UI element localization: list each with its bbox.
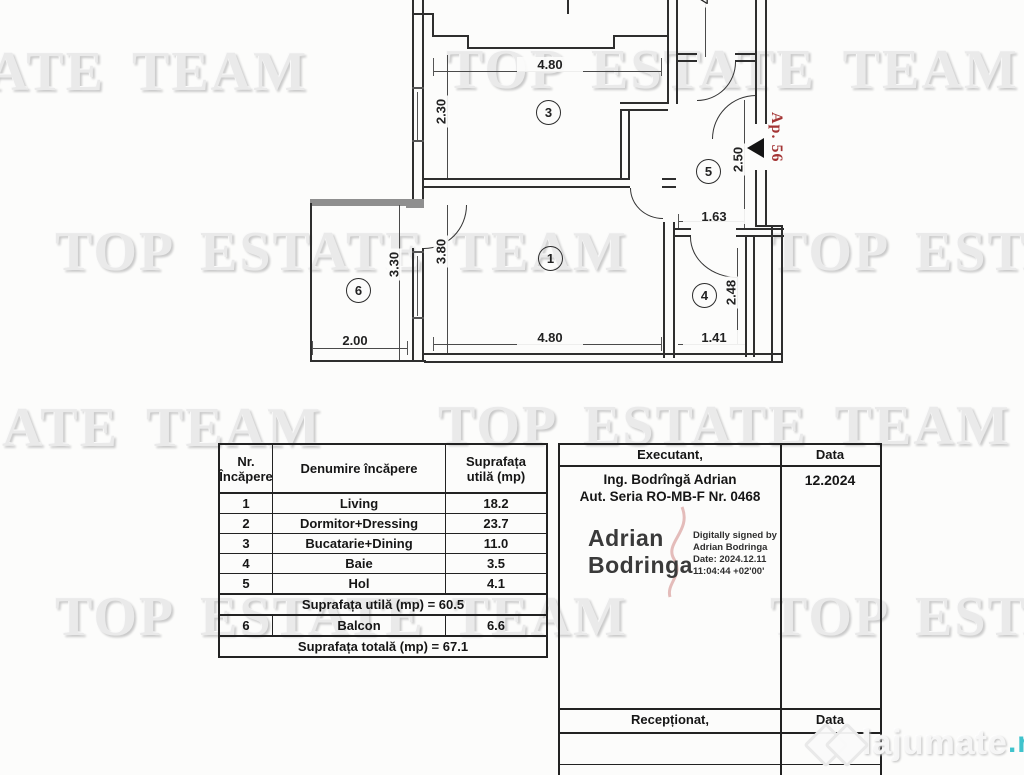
room-name-cell: Hol xyxy=(272,574,445,593)
wall-segment xyxy=(676,60,697,62)
signature-name-line: Adrian xyxy=(588,525,693,552)
table-row: 3 Bucatarie+Dining 11.0 xyxy=(220,533,546,553)
wall-segment xyxy=(663,222,665,358)
wall-segment xyxy=(310,203,312,362)
room-name-cell: Baie xyxy=(272,554,445,573)
balcony-wall xyxy=(406,199,424,208)
room-nr-cell: 3 xyxy=(220,534,272,553)
dimension-tick xyxy=(433,58,434,76)
signature-detail-line: Adrian Bodringa xyxy=(693,542,777,554)
wall-segment xyxy=(567,0,569,14)
wall-segment xyxy=(628,109,630,180)
table-row-balcony: 6 Balcon 6.6 xyxy=(220,614,546,635)
room-name-cell: Bucatarie+Dining xyxy=(272,534,445,553)
engineer-name: Ing. Bodrîngă Adrian xyxy=(560,472,780,487)
wall-segment xyxy=(424,353,783,355)
room-area-cell: 6.6 xyxy=(445,616,546,635)
wall-segment xyxy=(735,60,756,62)
header-nr: Nr. Încăpere xyxy=(220,445,272,492)
window-tick xyxy=(412,251,424,253)
wall-segment xyxy=(673,222,675,358)
dimension-tick xyxy=(661,337,662,351)
room-nr-cell: 6 xyxy=(220,616,272,635)
wall-segment xyxy=(781,225,783,362)
total-text: Suprafața totală (mp) = 67.1 xyxy=(298,639,468,654)
header-text: utilă (mp) xyxy=(467,469,526,484)
door-arc-living xyxy=(630,188,663,219)
header-name: Denumire încăpere xyxy=(272,445,445,492)
wall-segment xyxy=(755,225,783,227)
wall-segment xyxy=(422,248,424,362)
table-row: 4 Baie 3.5 xyxy=(220,553,546,573)
wall-segment xyxy=(620,109,622,180)
dim-label-hall-height: 2.50 xyxy=(731,130,746,190)
wall-segment xyxy=(662,186,676,188)
wall-segment xyxy=(613,35,615,49)
dim-label-bath-width: 1.41 xyxy=(683,330,745,345)
room-area-cell: 4.1 xyxy=(445,574,546,593)
wall-segment xyxy=(422,0,424,203)
wall-segment xyxy=(735,53,756,55)
header-text: Nr. xyxy=(237,454,254,469)
wall-segment xyxy=(676,0,678,104)
dim-label-kitchen-height: 2.30 xyxy=(434,82,449,142)
table-row: 5 Hol 4.1 xyxy=(220,573,546,593)
dim-text: 3.30 xyxy=(387,249,402,280)
wall-segment xyxy=(432,35,469,37)
digital-signature-name: Adrian Bodringa xyxy=(588,525,693,579)
wall-segment xyxy=(424,178,630,180)
wall-segment xyxy=(424,361,783,363)
door-arc-hall xyxy=(697,62,736,101)
dimension-tick xyxy=(407,341,408,355)
dim-label-balcony-width: 2.00 xyxy=(324,333,386,348)
wall-segment xyxy=(755,170,757,227)
wall-segment xyxy=(667,0,669,104)
room-nr-cell: 4 xyxy=(220,554,272,573)
executant-label: Executant, xyxy=(560,447,780,462)
room-nr-cell: 2 xyxy=(220,514,272,533)
signature-name-line: Bodringa xyxy=(588,552,693,579)
signature-detail-line: Digitally signed by xyxy=(693,530,777,542)
wall-segment xyxy=(620,102,668,104)
wall-segment xyxy=(765,0,767,124)
dim-label-balcony-height: 3.30 xyxy=(387,235,402,295)
header-rule xyxy=(560,465,880,467)
wall-segment xyxy=(674,228,691,230)
section-rule xyxy=(560,708,880,710)
date-value: 12.2024 xyxy=(782,472,878,488)
wall-segment xyxy=(310,360,426,362)
apartment-number-label: Ap. 56 xyxy=(767,112,785,188)
wall-segment xyxy=(613,35,669,37)
header-text: Denumire încăpere xyxy=(300,461,417,476)
lajumate-logo-icon xyxy=(806,720,862,766)
subtotal-row: Suprafața utilă (mp) = 60.5 xyxy=(220,593,546,614)
engineer-authorization: Aut. Seria RO-MB-F Nr. 0468 xyxy=(560,489,780,504)
lajumate-logo-text: lajumate xyxy=(862,724,1008,763)
wall-segment xyxy=(412,13,434,15)
dim-text: 2.30 xyxy=(434,96,449,127)
dim-text: 2.50 xyxy=(731,144,746,175)
dimension-tick xyxy=(312,341,313,355)
room-name-cell: Dormitor+Dressing xyxy=(272,514,445,533)
signature-detail-line: Date: 2024.12.11 xyxy=(693,554,777,566)
wall-segment xyxy=(412,248,414,362)
header-text: Suprafața xyxy=(466,454,526,469)
room-area-cell: 3.5 xyxy=(445,554,546,573)
dimension-line xyxy=(312,348,408,349)
wall-segment xyxy=(676,53,697,55)
dim-label-living-height: 3.80 xyxy=(434,222,449,282)
lajumate-watermark: lajumate.ro xyxy=(806,720,1024,766)
dimension-tick xyxy=(433,337,434,351)
window-tick xyxy=(412,87,424,89)
window-mid-line xyxy=(417,256,418,316)
rooms-table: Nr. Încăpere Denumire încăpere Suprafața… xyxy=(218,443,548,658)
room-area-cell: 18.2 xyxy=(445,494,546,513)
window-tick xyxy=(412,317,424,319)
wall-segment xyxy=(736,235,784,237)
lajumate-logo-tld: .ro xyxy=(1008,726,1024,760)
table-row: 2 Dormitor+Dressing 23.7 xyxy=(220,513,546,533)
room-circle-living: 1 xyxy=(538,246,563,271)
table-row: 1 Living 18.2 xyxy=(220,492,546,513)
room-area-cell: 11.0 xyxy=(445,534,546,553)
wall-segment xyxy=(771,225,773,362)
window-mid-line xyxy=(417,92,418,140)
dim-label-bath-height: 2.48 xyxy=(724,263,739,323)
dim-text: 2.48 xyxy=(724,277,739,308)
wall-segment xyxy=(662,178,676,180)
dimension-tick xyxy=(678,214,679,228)
total-row: Suprafața totală (mp) = 67.1 xyxy=(220,635,546,656)
dim-label-cut-top: 4 xyxy=(698,0,713,16)
room-circle-balcony: 6 xyxy=(346,278,371,303)
dimension-tick xyxy=(661,58,662,76)
room-nr-cell: 5 xyxy=(220,574,272,593)
scanned-floor-plan-page: { "watermarks": { "full": "TOP ESTATE TE… xyxy=(0,0,1024,768)
header-area: Suprafața utilă (mp) xyxy=(445,445,546,492)
wall-segment xyxy=(745,237,747,357)
receptionat-label: Recepționat, xyxy=(560,712,780,727)
dim-label-top-width: 4.80 xyxy=(517,57,583,72)
dim-label-hall-width: 1.63 xyxy=(683,209,745,224)
wall-segment xyxy=(467,47,615,49)
wall-segment xyxy=(674,235,691,237)
wall-segment xyxy=(753,237,755,357)
wall-segment xyxy=(432,13,434,37)
dim-text: 3.80 xyxy=(434,236,449,267)
room-name-cell: Balcon xyxy=(272,616,445,635)
dim-label-living-width: 4.80 xyxy=(517,330,583,345)
subtotal-text: Suprafața utilă (mp) = 60.5 xyxy=(302,597,464,612)
room-name-cell: Living xyxy=(272,494,445,513)
signature-detail-line: 11:04:44 +02'00' xyxy=(693,566,777,578)
data-label: Data xyxy=(782,447,878,462)
room-nr-cell: 1 xyxy=(220,494,272,513)
digital-signature-details: Digitally signed by Adrian Bodringa Date… xyxy=(693,530,777,578)
wall-segment xyxy=(424,186,630,188)
wall-segment xyxy=(736,228,784,230)
header-text: Încăpere xyxy=(219,469,272,484)
room-circle-kitchen: 3 xyxy=(536,100,561,125)
dim-text: 4 xyxy=(698,0,713,7)
room-circle-bathroom: 4 xyxy=(692,283,717,308)
rooms-table-header: Nr. Încăpere Denumire încăpere Suprafața… xyxy=(220,445,546,492)
room-area-cell: 23.7 xyxy=(445,514,546,533)
room-circle-hall: 5 xyxy=(696,159,721,184)
entrance-arrow-icon xyxy=(747,138,764,158)
window-tick xyxy=(412,140,424,142)
wall-segment xyxy=(412,0,414,203)
